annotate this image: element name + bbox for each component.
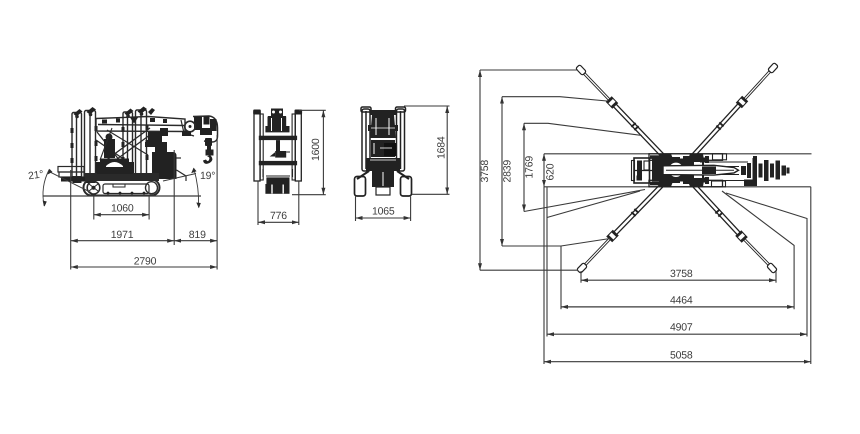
svg-text:819: 819: [189, 229, 206, 241]
svg-text:19°: 19°: [200, 170, 215, 182]
svg-text:620: 620: [545, 163, 557, 180]
svg-text:1971: 1971: [111, 229, 134, 241]
svg-text:2790: 2790: [134, 255, 157, 267]
svg-text:776: 776: [270, 210, 287, 222]
svg-text:1769: 1769: [524, 156, 536, 179]
svg-text:1065: 1065: [372, 206, 395, 218]
svg-text:3758: 3758: [670, 268, 693, 280]
svg-text:2839: 2839: [502, 160, 514, 183]
svg-text:4907: 4907: [670, 322, 693, 334]
svg-text:21°: 21°: [27, 168, 44, 182]
svg-text:1600: 1600: [310, 138, 322, 161]
svg-text:4464: 4464: [670, 295, 693, 307]
svg-text:1060: 1060: [111, 203, 134, 215]
svg-text:3758: 3758: [479, 160, 491, 183]
svg-text:1684: 1684: [436, 136, 448, 159]
svg-text:5058: 5058: [670, 349, 693, 361]
